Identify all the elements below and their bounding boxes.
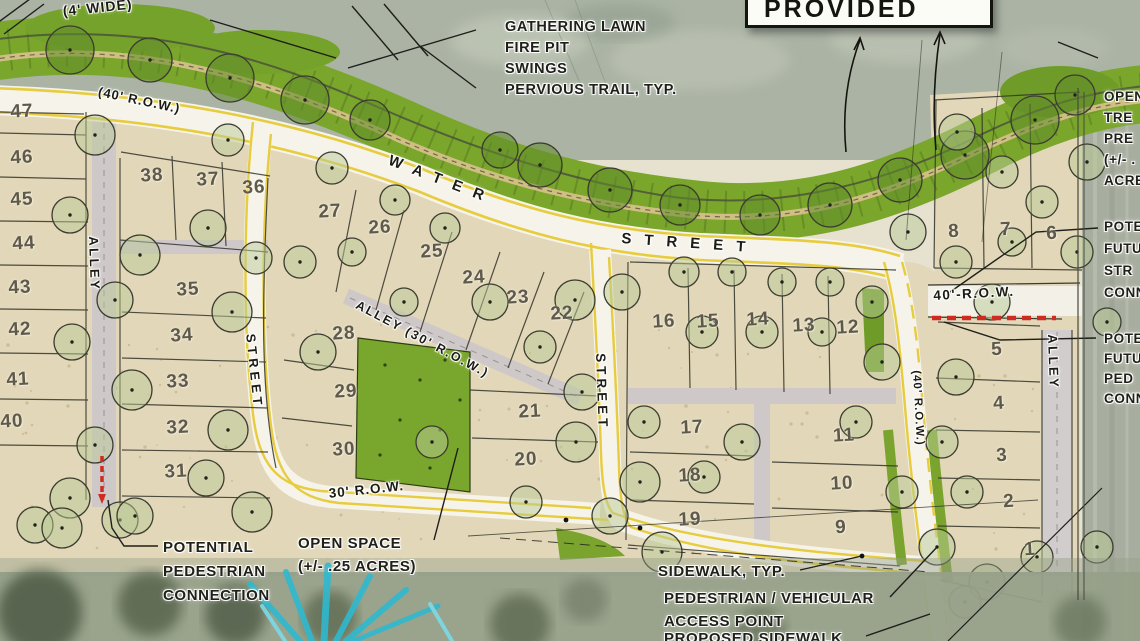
bottom-photo-band: [0, 558, 1140, 641]
provided-note-box: PROVIDED: [745, 0, 993, 28]
site-plan-sheet: 4746454443424140383736353433323130292827…: [0, 0, 1140, 641]
plan-artwork: [0, 0, 1140, 641]
provided-label: PROVIDED: [764, 0, 919, 24]
